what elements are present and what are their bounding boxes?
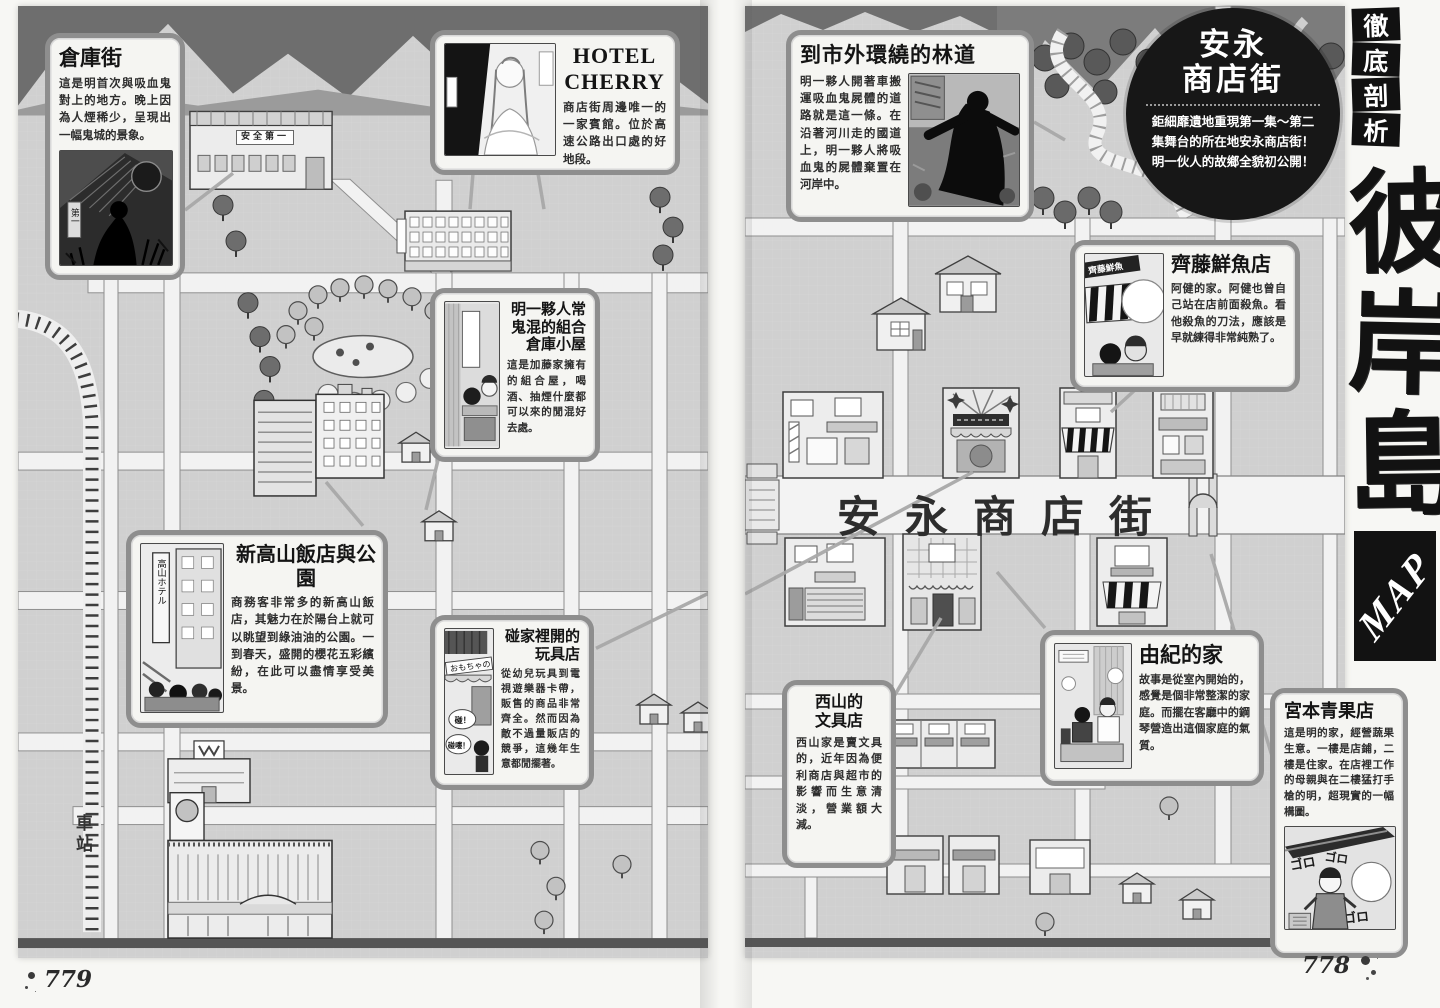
callout-warehouse-district: 倉庫街 這是明首次與吸血鬼對上的地方。晚上因為人煙稀少，呈現出一幅鬼城的景象。 …: [45, 33, 185, 280]
warehouse-sign-label: 安全第一: [236, 130, 294, 145]
toy-bubble-a: 碰！: [455, 715, 471, 725]
map-bottom-edge: [18, 938, 708, 948]
callout-body: 這是加藤家擁有的組合屋，喝酒、抽煙什麼都可以來的閒混好去處。: [507, 358, 586, 437]
banner-box: 剖: [1351, 77, 1400, 112]
callout-nishiyama-stationery: 西山的文具店 西山家是賣文具的，近年因為便利商店與超市的影響而生意清淡，營業額大…: [782, 680, 896, 868]
page-number-left: 779: [44, 966, 92, 993]
callout-body: 商務客非常多的新高山飯店，其魅力在於陽台上就可以眺望到綠油油的公園。一到春天，盛…: [231, 594, 374, 698]
callout-toy-shop: おもちゃの 碰！ 碰嘍！ 碰家裡開的玩具店 從幼兒玩具到電視遊樂器卡帶，販售的商…: [430, 615, 594, 790]
callout-saito-fish-shop: 齊藤鮮魚 齊藤鮮魚店 阿健的家。阿健也曾自己站在店前面殺魚。看他殺魚的刀法，應該…: [1070, 240, 1300, 392]
callout-takayama-hotel-park: 高山ホテル 新高山飯店與公園: [126, 530, 388, 728]
series-title-char: 岸: [1347, 284, 1440, 407]
page-left: 安全第一 車站 倉庫街 這是明首次與吸血鬼對上的地方。晚上因為人煙稀少，呈現出一…: [18, 6, 708, 958]
page-right: 安永商店街 到市外環繞的林道 明一夥人開著車搬運吸血鬼屍體的道路就是這一條。在沿…: [745, 6, 1345, 958]
callout-hotel-cherry: HOTEL CHERRY 商店街周邊唯一的一家賓館。位於高速公路出口處的好地段。: [430, 30, 680, 175]
map-label: MAP: [1354, 541, 1436, 651]
cabin-scene-image: [444, 301, 500, 449]
callout-title: 齊藤鮮魚店: [1171, 253, 1286, 277]
yuki-home-scene-image: [1054, 643, 1132, 769]
map-bottom-edge: [745, 938, 1345, 947]
callout-body: 這是明的家，經營蔬果生意。一樓是店鋪，二樓是住家。在店裡工作的母親與在二樓猛打手…: [1284, 726, 1394, 821]
badge-body: 鉅細靡遺地重現第一集～第二集舞台的所在地安永商店街！明一伙人的故鄉全貌初公開！: [1126, 112, 1340, 171]
callout-title: 到市外環繞的林道: [800, 43, 1020, 68]
callout-title: 碰家裡開的玩具店: [501, 628, 580, 663]
callout-body: 明一夥人開著車搬運吸血鬼屍體的道路就是這一條。在沿著河川走的國道上，明一夥人將吸…: [800, 73, 901, 194]
takayama-scene-image: 高山ホテル: [140, 543, 224, 713]
banner-box: 析: [1351, 112, 1400, 147]
map-label-box: MAP: [1354, 531, 1436, 661]
badge-title-line: 商店街: [1126, 63, 1340, 98]
shops-below-street: [785, 534, 1167, 630]
callout-title: 由紀的家: [1139, 643, 1250, 668]
banner-char: 剖: [1363, 76, 1389, 113]
fruit-shop-scene-image: ゴロ ゴロ ゴロ: [1284, 826, 1396, 930]
banner-char: 底: [1363, 41, 1389, 78]
callout-yuki-home: 由紀的家 故事是從室內開始的，感覺是個非常整潔的家庭。而擺在客廳中的鋼琴營造出這…: [1040, 630, 1264, 786]
callout-title: 明一夥人常鬼混的組合倉庫小屋: [507, 301, 586, 354]
hotel-sign-text: 高山ホテル: [155, 558, 167, 605]
banner-box: 底: [1351, 42, 1400, 77]
warehouse-building: [190, 112, 332, 190]
callout-body: 西山家是賣文具的，近年因為便利商店與超市的影響而生意清淡，營業額大減。: [796, 735, 882, 834]
callout-body: 故事是從室內開始的，感覺是個非常整潔的家庭。而擺在客廳中的鋼琴營造出這個家庭的氣…: [1139, 672, 1250, 755]
callout-title: HOTEL CHERRY: [563, 43, 666, 95]
warehouse-banner-text: 第一: [69, 207, 79, 226]
warehouse-scene-image: 第一: [59, 150, 173, 266]
callout-body: 從幼兒玩具到電視遊樂器卡帶，販售的商品非常齊全。然而因為敵不過量販店的競爭，這幾…: [501, 667, 580, 772]
street-badge: 安永 商店街 鉅細靡遺地重現第一集～第二集舞台的所在地安永商店街！明一伙人的故鄉…: [1126, 8, 1340, 220]
hotel-cherry-scene-image: [444, 43, 556, 156]
toy-shop-scene-image: おもちゃの 碰！ 碰嘍！: [444, 628, 494, 775]
callout-title: 宮本青果店: [1284, 701, 1394, 722]
banner-char: 析: [1363, 111, 1389, 148]
callout-body: 商店街周邊唯一的一家賓館。位於高速公路出口處的好地段。: [563, 99, 666, 168]
street-name-label: 安永商店街: [837, 483, 1177, 545]
fish-shop-scene-image: 齊藤鮮魚: [1084, 253, 1164, 377]
badge-title-line: 安永: [1126, 28, 1340, 63]
page-gutter: [700, 0, 752, 1008]
callout-title: 新高山飯店與公園: [231, 543, 381, 590]
banner-box: 徹: [1351, 7, 1400, 42]
series-title-char: 彼: [1347, 163, 1440, 286]
toy-bubble-b: 碰嘍！: [447, 741, 470, 750]
banner-char: 徹: [1363, 6, 1389, 43]
forest-road-scene-image: [908, 73, 1020, 207]
callout-forest-road: 到市外環繞的林道 明一夥人開著車搬運吸血鬼屍體的道路就是這一條。在沿著河川走的國…: [786, 30, 1034, 222]
callout-title: 西山的文具店: [810, 693, 868, 731]
page-number-right: 778: [1302, 952, 1350, 979]
callout-prefab-cabin: 明一夥人常鬼混的組合倉庫小屋 這是加藤家擁有的組合屋，喝酒、抽煙什麼都可以來的閒…: [430, 288, 600, 462]
hotel-cherry-building: [397, 211, 511, 271]
station-label: 車站: [70, 814, 95, 856]
callout-title: 倉庫街: [59, 46, 171, 71]
badge-divider: [1146, 104, 1320, 106]
callout-body: 阿健的家。阿健也曾自己站在店前面殺魚。看他殺魚的刀法，應該是早就練得非常純熟了。: [1171, 281, 1286, 347]
callout-body: 這是明首次與吸血鬼對上的地方。晚上因為人煙稀少，呈現出一幅鬼城的景象。: [59, 75, 171, 144]
book-spread: 安全第一 車站 倉庫街 這是明首次與吸血鬼對上的地方。晚上因為人煙稀少，呈現出一…: [0, 0, 1440, 1008]
series-title-char: 島: [1347, 405, 1440, 527]
callout-miyamoto-fruit-shop: 宮本青果店 這是明的家，經營蔬果生意。一樓是店鋪，二樓是住家。在店裡工作的母親與…: [1270, 688, 1408, 958]
